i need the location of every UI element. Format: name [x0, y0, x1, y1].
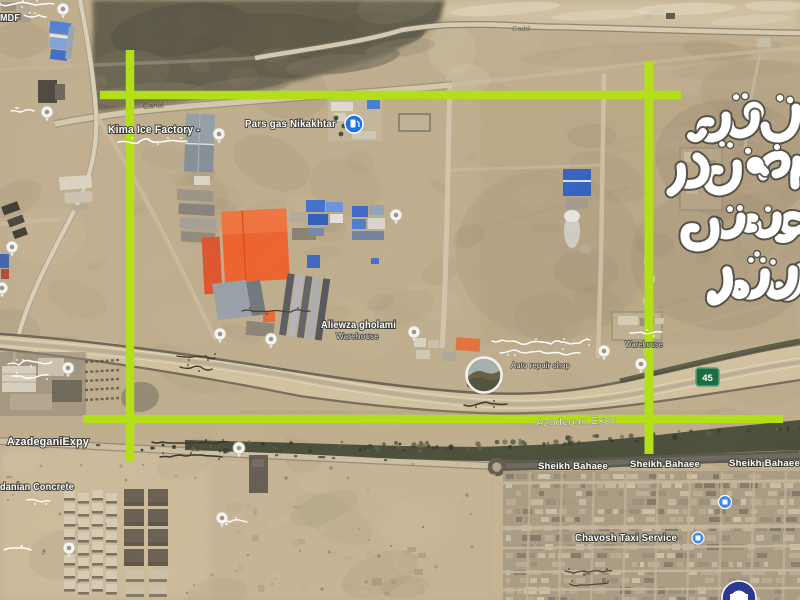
svg-text:danian Concrete: danian Concrete — [0, 481, 74, 493]
svg-text:Pars gas Nikakhtar: Pars gas Nikakhtar — [245, 119, 336, 130]
svg-text:Kima Ice Factory -: Kima Ice Factory - — [108, 124, 200, 136]
svg-text:Aliewza gholami: Aliewza gholami — [321, 319, 396, 331]
svg-text:Sheikh Bahaee: Sheikh Bahaee — [538, 461, 608, 472]
svg-text:Warehouse: Warehouse — [336, 331, 379, 341]
svg-text:Auto repair shop: Auto repair shop — [511, 361, 570, 370]
svg-text:MDF: MDF — [0, 13, 20, 24]
svg-text:Sheikh Bahaee: Sheikh Bahaee — [630, 459, 700, 470]
svg-text:AzadeganiExpy: AzadeganiExpy — [7, 436, 90, 448]
svg-text:45: 45 — [702, 373, 713, 384]
svg-text:Chavosh Taxi Service: Chavosh Taxi Service — [575, 532, 677, 544]
svg-text:Sheikh Bahaee: Sheikh Bahaee — [729, 458, 800, 469]
svg-text:Warehouse: Warehouse — [625, 339, 663, 349]
svg-text:Canal: Canal — [143, 101, 165, 111]
svg-text:Cadd: Cadd — [512, 24, 530, 33]
